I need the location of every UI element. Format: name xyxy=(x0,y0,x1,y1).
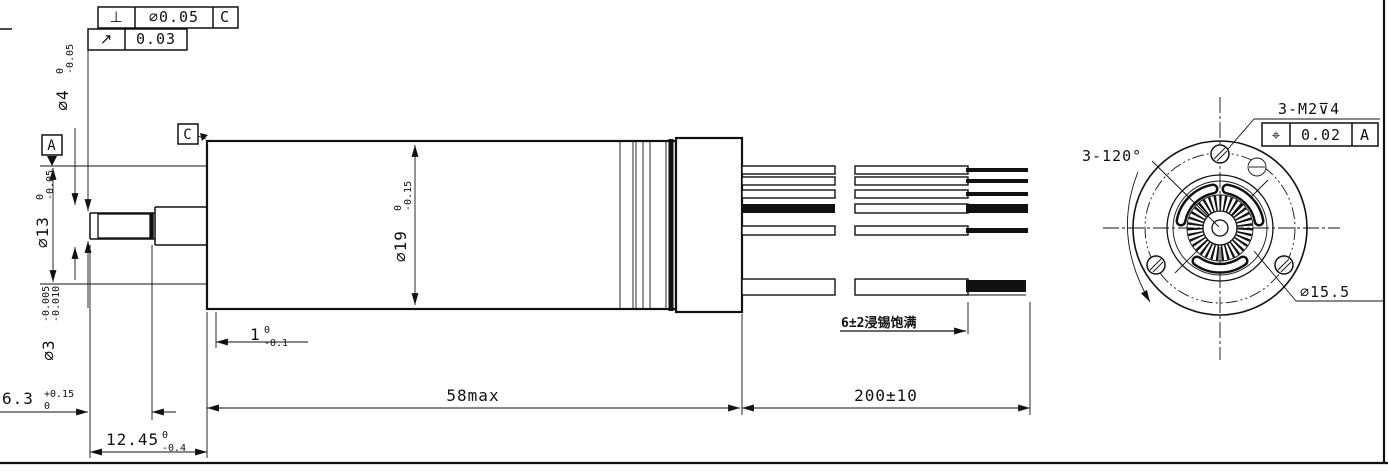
dim-pilot-d13-lower-tol: -0.05 xyxy=(45,170,56,200)
dim-shaft-len-12-45: 12.45 0 -0.4 xyxy=(106,430,186,454)
output-shaft-outline xyxy=(40,166,207,284)
dim-body-d19-value: ⌀19 xyxy=(391,230,410,262)
runout-icon: ↗ xyxy=(100,30,113,48)
screw-hole-icon xyxy=(1211,145,1229,163)
thread-note-label: 3-M2⊽4 xyxy=(1278,100,1340,118)
dim-step-1-upper-tol: 0 xyxy=(264,325,270,336)
tin-note: 6±2浸锡饱满 xyxy=(841,315,916,331)
dim-tip-6-3-value: 6.3 xyxy=(2,389,34,408)
dim-shaft-len-value: 12.45 xyxy=(106,430,159,449)
datum-c-label: C xyxy=(183,127,192,143)
pin-hole-icon xyxy=(1248,158,1266,176)
dim-step-1-lower-tol: -0.1 xyxy=(264,338,288,349)
screw-hole-icon xyxy=(1147,256,1165,274)
screw-hole-icon xyxy=(1275,256,1293,274)
dim-shaft-d4-value: ⌀4 xyxy=(53,89,72,110)
datum-c-triangle-icon xyxy=(200,133,208,141)
dim-shaft-len-upper-tol: 0 xyxy=(162,430,168,441)
dim-step-1-value: 1 xyxy=(250,325,261,344)
dim-tip-6-3: 6.3 +0.15 0 xyxy=(2,389,74,412)
dim-body-length: 58max xyxy=(446,386,499,405)
datum-a-triangle-icon xyxy=(47,156,57,166)
dim-shaft-d4: ⌀4 0 -0.05 xyxy=(53,44,76,111)
dim-tip-6-3-lower-tol: 0 xyxy=(44,401,50,412)
motor-body-outline xyxy=(207,138,742,312)
dim-shaft-d3-value: ⌀3 xyxy=(39,339,58,360)
position-tolerance: 0.02 xyxy=(1301,126,1341,144)
datum-c: C xyxy=(178,124,208,144)
dim-shaft-d3: ⌀3 -0.005 -0.010 xyxy=(39,286,62,361)
dim-tip-6-3-upper-tol: +0.15 xyxy=(44,389,74,400)
dim-shaft-d4-lower-tol: -0.05 xyxy=(65,44,76,74)
dim-shaft-d3-lower-tol: -0.010 xyxy=(51,286,62,322)
runout-frame: ↗ 0.03 xyxy=(88,29,187,50)
dim-shaft-len-lower-tol: -0.4 xyxy=(162,443,186,454)
bolt-circle-diameter-label: ⌀15.5 xyxy=(1300,283,1350,301)
datum-a: A xyxy=(42,135,62,166)
position-frame: ⌖ 0.02 A xyxy=(1262,123,1378,146)
perpendicularity-tolerance: ⌀0.05 xyxy=(149,8,199,26)
dim-pilot-d13-value: ⌀13 xyxy=(33,216,52,248)
perpendicularity-frame: ⊥ ⌀0.05 C xyxy=(98,7,238,28)
engineering-drawing-sheet: ⊥ ⌀0.05 C ↗ 0.03 A C ⌀4 0 -0.05 ⌀13 0 -0… xyxy=(0,0,1388,471)
lead-wires xyxy=(742,166,1028,295)
position-icon: ⌖ xyxy=(1272,126,1281,144)
runout-tolerance: 0.03 xyxy=(136,30,176,48)
dim-body-d19-lower-tol: -0.15 xyxy=(403,181,414,211)
dim-lead-length: 200±10 xyxy=(854,386,918,405)
motor-drawing-canvas: ⊥ ⌀0.05 C ↗ 0.03 A C ⌀4 0 -0.05 ⌀13 0 -0… xyxy=(0,0,1388,471)
dim-step-1: 1 0 -0.1 xyxy=(250,325,288,349)
tinned-wire-tips xyxy=(966,168,1028,295)
position-datum-ref: A xyxy=(1360,126,1370,144)
hole-angle-label: 3-120° xyxy=(1082,147,1142,165)
perpendicularity-icon: ⊥ xyxy=(109,8,122,26)
perpendicularity-datum-ref: C xyxy=(220,8,230,26)
datum-a-label: A xyxy=(47,138,56,154)
